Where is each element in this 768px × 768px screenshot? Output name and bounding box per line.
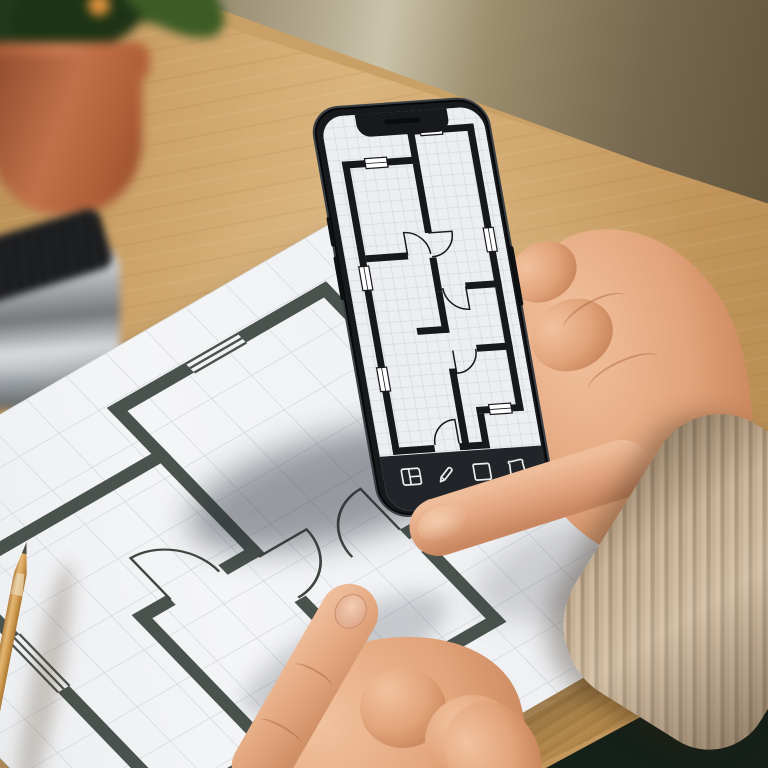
left-index-fingernail <box>328 588 373 635</box>
potted-plant <box>0 0 270 260</box>
pencil-icon[interactable] <box>431 460 461 488</box>
scene <box>0 0 768 768</box>
phone-speaker <box>384 117 421 124</box>
finger-crease <box>292 660 334 691</box>
plant-pot <box>0 55 142 215</box>
grid-plan-icon[interactable] <box>396 463 426 491</box>
finger-crease <box>258 715 304 748</box>
